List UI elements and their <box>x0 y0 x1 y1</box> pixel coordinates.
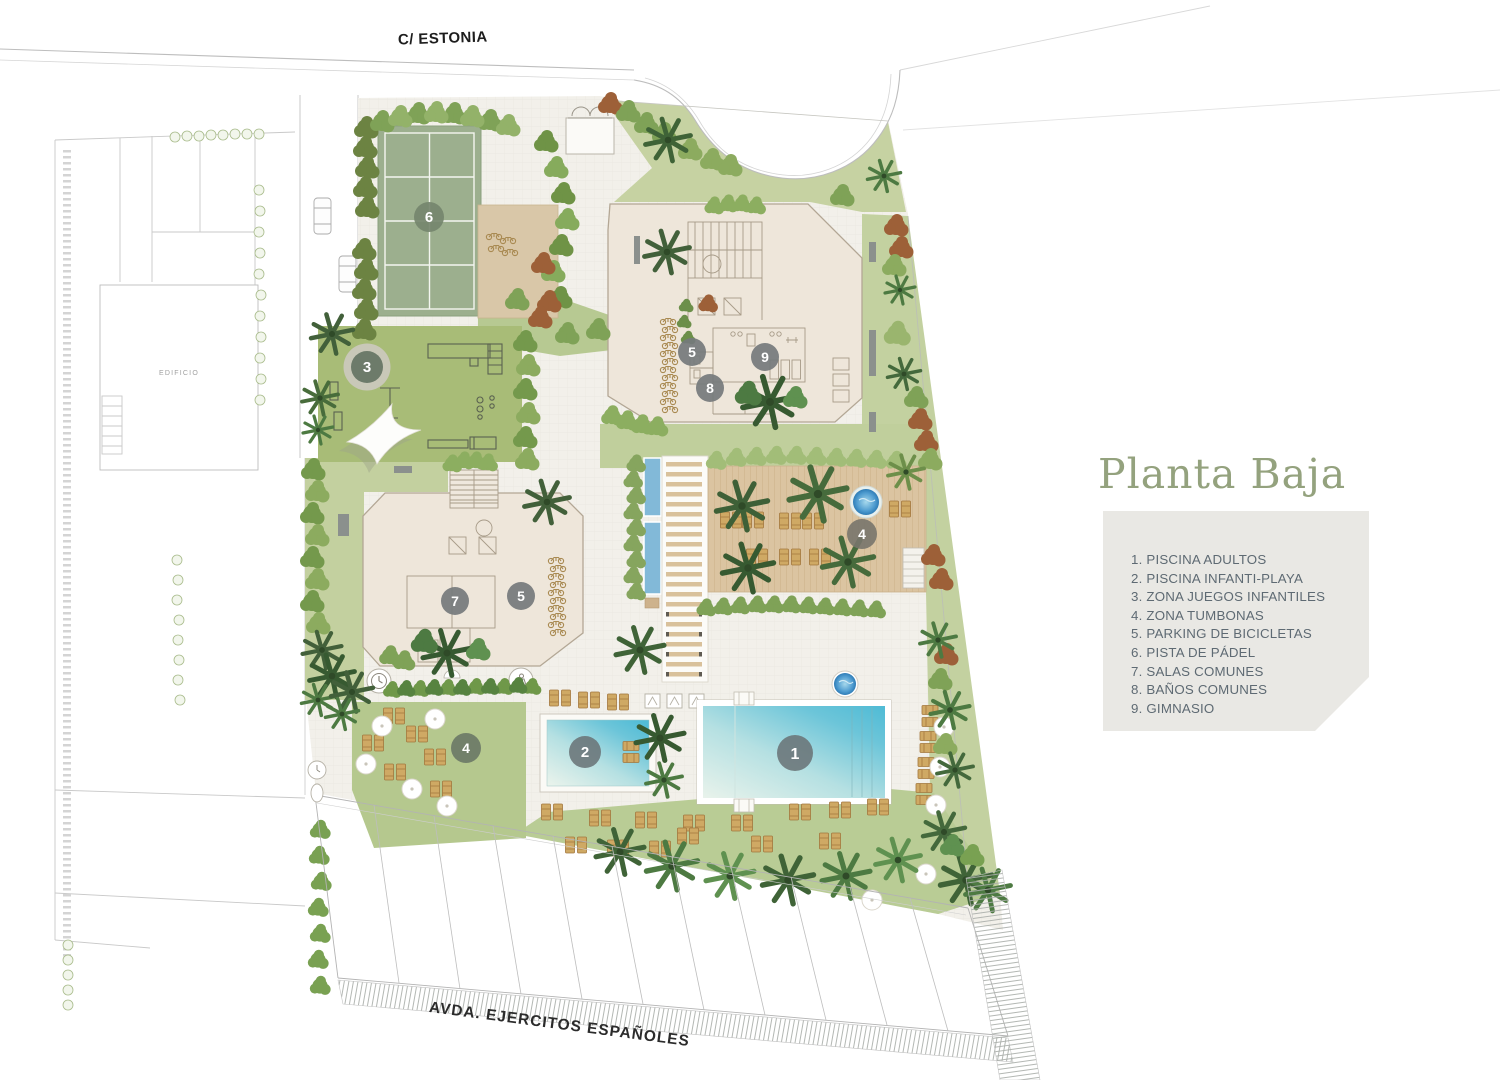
marker-bikes-north: 5 <box>678 338 706 366</box>
bench <box>634 236 640 264</box>
legend-item: 2. PISCINA INFANTI-PLAYA <box>1131 570 1325 589</box>
svg-text:9: 9 <box>761 349 769 365</box>
deck-stairs <box>903 548 924 588</box>
marker-tumbonas-deck: 4 <box>847 519 877 549</box>
round-pool <box>850 486 882 518</box>
marker-pool-infant: 2 <box>569 736 601 768</box>
svg-text:5: 5 <box>688 344 696 360</box>
legend: 1. PISCINA ADULTOS 2. PISCINA INFANTI-PL… <box>1103 511 1369 731</box>
marker-salas: 7 <box>441 587 469 615</box>
legend-list: 1. PISCINA ADULTOS 2. PISCINA INFANTI-PL… <box>1131 551 1325 718</box>
svg-text:8: 8 <box>706 380 714 396</box>
svg-text:4: 4 <box>462 740 470 756</box>
slat-walkway <box>662 456 708 682</box>
svg-text:2: 2 <box>581 744 589 761</box>
marker-pool-adult: 1 <box>777 735 813 771</box>
walkway-gates <box>645 694 704 708</box>
legend-item: 7. SALAS COMUNES <box>1131 663 1325 682</box>
site-plan-page: EDIFICIO <box>0 0 1503 1080</box>
marker-gimnasio: 9 <box>751 343 779 371</box>
svg-text:5: 5 <box>517 588 525 604</box>
sidewalk-hatch-south <box>338 980 1013 1062</box>
marker-playground: 3 <box>344 344 391 391</box>
spa-pool <box>832 671 858 697</box>
water-feature <box>644 458 661 608</box>
legend-item: 5. PARKING DE BICICLETAS <box>1131 625 1325 644</box>
legend-item: 9. GIMNASIO <box>1131 700 1325 719</box>
legend-item: 3. ZONA JUEGOS INFANTILES <box>1131 588 1325 607</box>
legend-item: 8. BAÑOS COMUNES <box>1131 681 1325 700</box>
legend-item: 1. PISCINA ADULTOS <box>1131 551 1325 570</box>
car <box>339 256 356 292</box>
svg-text:7: 7 <box>451 593 459 609</box>
svg-text:4: 4 <box>858 526 866 542</box>
legend-item: 4. ZONA TUMBONAS <box>1131 607 1325 626</box>
marker-padel: 6 <box>414 202 444 232</box>
building-north <box>608 204 862 422</box>
neighbor-building-label: EDIFICIO <box>159 370 199 377</box>
page-title: Planta Baja <box>1098 450 1346 498</box>
neighbor-shrub-rows <box>63 129 266 1010</box>
marker-banos: 8 <box>696 374 724 402</box>
legend-item: 6. PISTA DE PÁDEL <box>1131 644 1325 663</box>
marker-bikes-south: 5 <box>507 582 535 610</box>
marker-tumbonas-lawn: 4 <box>451 733 481 763</box>
car <box>314 198 331 234</box>
svg-text:3: 3 <box>363 359 371 376</box>
svg-text:6: 6 <box>425 209 433 226</box>
svg-text:1: 1 <box>791 746 800 763</box>
street-label-estonia: C/ ESTONIA <box>398 28 488 48</box>
neighbor-parcel <box>55 132 305 960</box>
